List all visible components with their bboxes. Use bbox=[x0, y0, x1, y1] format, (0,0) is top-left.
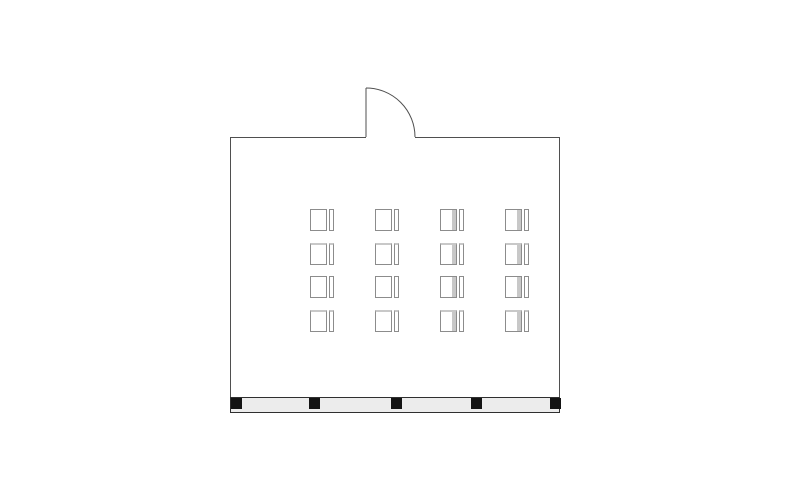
desk-unit-r1-c4 bbox=[505, 209, 529, 231]
desk-unit-r4-c4 bbox=[505, 310, 529, 332]
desk-unit-r4-c1 bbox=[310, 310, 334, 332]
chair bbox=[459, 209, 464, 231]
desk bbox=[310, 276, 327, 298]
chair bbox=[329, 209, 334, 231]
desk bbox=[375, 243, 392, 265]
desk bbox=[440, 276, 457, 298]
desk bbox=[375, 310, 392, 332]
chair bbox=[329, 243, 334, 265]
desk-unit-r3-c1 bbox=[310, 276, 334, 298]
chair bbox=[459, 243, 464, 265]
chair bbox=[524, 243, 529, 265]
desk-unit-r1-c1 bbox=[310, 209, 334, 231]
desk-grid bbox=[0, 0, 800, 500]
chair bbox=[459, 310, 464, 332]
desk bbox=[310, 209, 327, 231]
chair bbox=[394, 209, 399, 231]
desk-unit-r3-c3 bbox=[440, 276, 464, 298]
desk-unit-r3-c2 bbox=[375, 276, 399, 298]
chair bbox=[459, 276, 464, 298]
desk bbox=[375, 276, 392, 298]
desk bbox=[505, 243, 522, 265]
desk-unit-r1-c3 bbox=[440, 209, 464, 231]
desk bbox=[375, 209, 392, 231]
desk-unit-r4-c3 bbox=[440, 310, 464, 332]
desk-unit-r2-c4 bbox=[505, 243, 529, 265]
desk-unit-r2-c3 bbox=[440, 243, 464, 265]
desk-unit-r3-c4 bbox=[505, 276, 529, 298]
desk bbox=[505, 310, 522, 332]
chair bbox=[524, 276, 529, 298]
desk bbox=[505, 209, 522, 231]
desk bbox=[440, 209, 457, 231]
desk bbox=[440, 243, 457, 265]
desk bbox=[505, 276, 522, 298]
chair bbox=[329, 310, 334, 332]
floor-plan-canvas bbox=[0, 0, 800, 500]
desk-unit-r2-c2 bbox=[375, 243, 399, 265]
desk-unit-r2-c1 bbox=[310, 243, 334, 265]
chair bbox=[394, 276, 399, 298]
desk-unit-r1-c2 bbox=[375, 209, 399, 231]
chair bbox=[329, 276, 334, 298]
chair bbox=[524, 310, 529, 332]
desk bbox=[310, 310, 327, 332]
chair bbox=[524, 209, 529, 231]
desk bbox=[310, 243, 327, 265]
desk-unit-r4-c2 bbox=[375, 310, 399, 332]
chair bbox=[394, 243, 399, 265]
chair bbox=[394, 310, 399, 332]
desk bbox=[440, 310, 457, 332]
